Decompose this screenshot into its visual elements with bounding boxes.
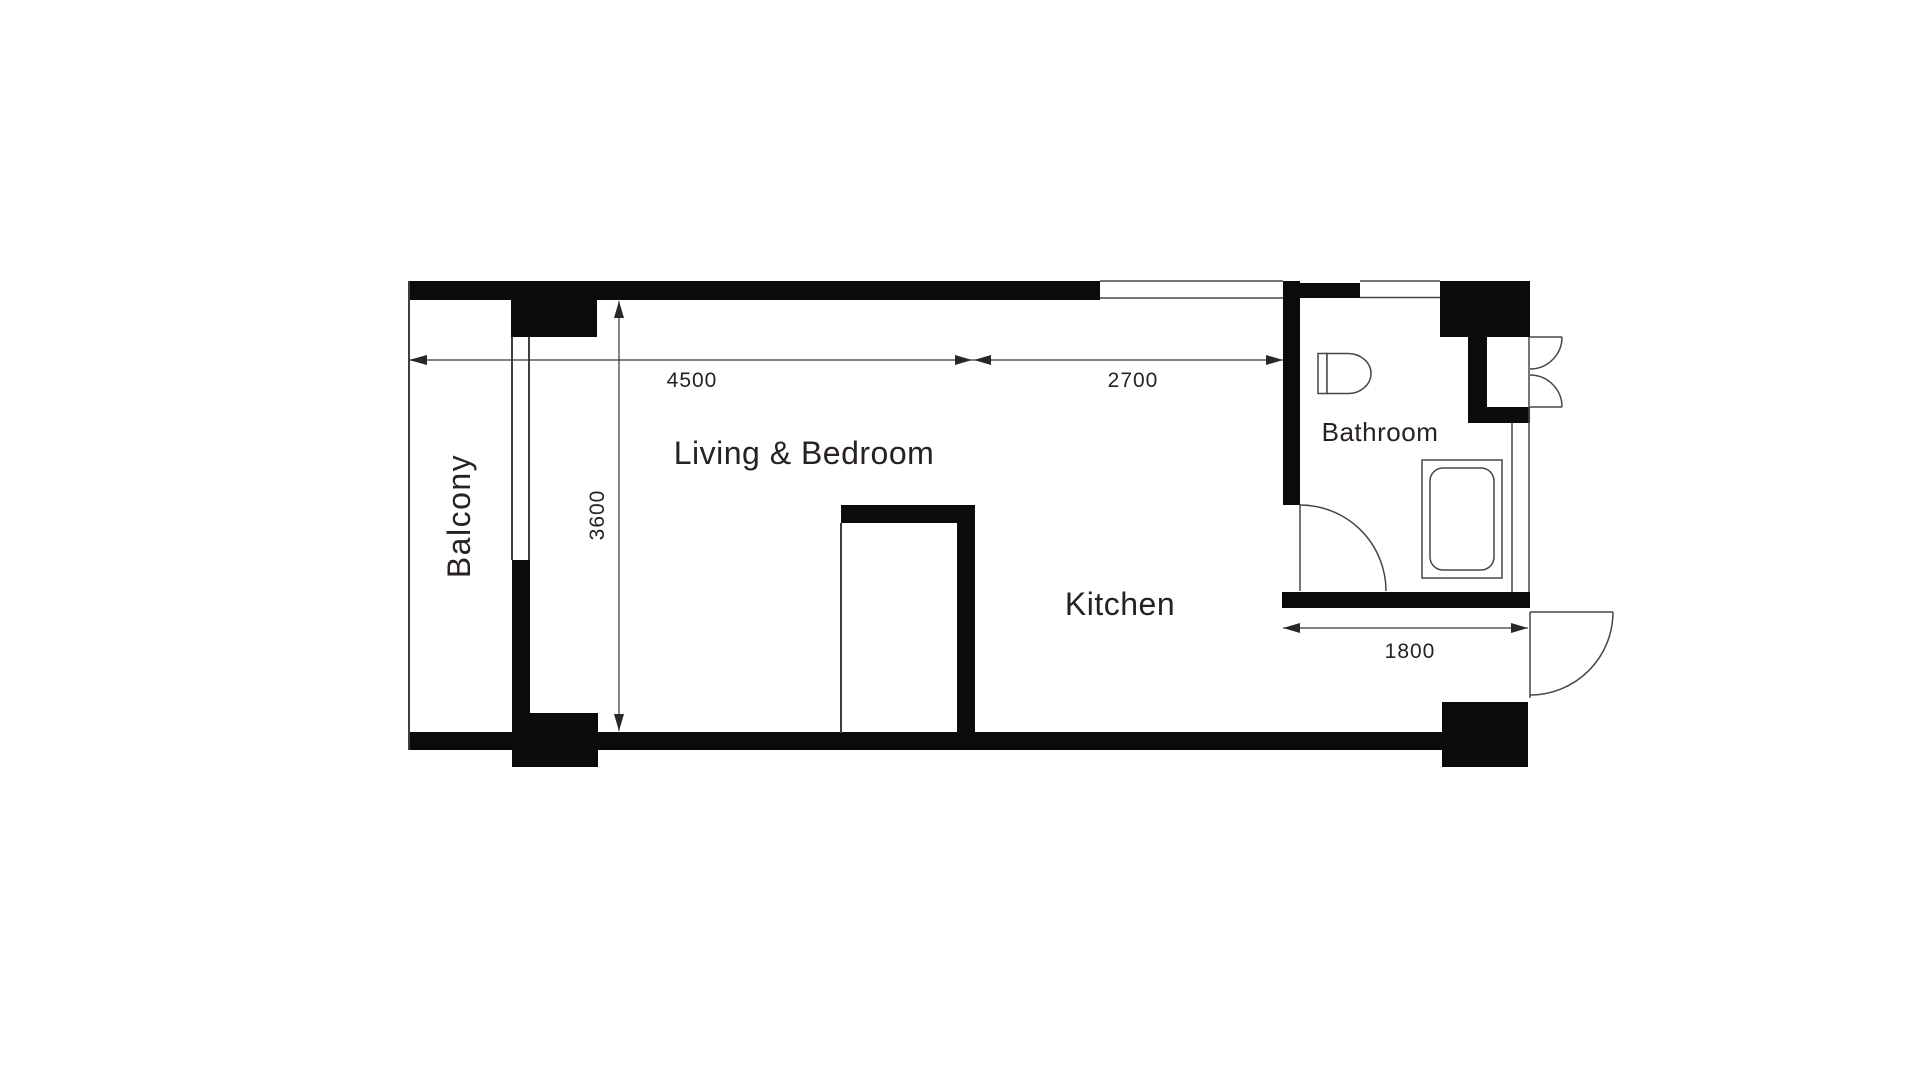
wall-balcony-right bbox=[512, 560, 530, 713]
room-label-kitchen: Kitchen bbox=[1065, 586, 1175, 622]
shaft-double-doors bbox=[1530, 337, 1562, 407]
toilet-tank bbox=[1318, 354, 1327, 394]
room-label-balcony: Balcony bbox=[441, 454, 477, 578]
floor-plan-drawing: 4500 2700 3600 1800 Balcony Living & Bed… bbox=[0, 0, 1920, 1080]
wall-bathroom-top bbox=[1300, 283, 1360, 298]
toilet-icon bbox=[1318, 354, 1371, 394]
wall-column-top-right bbox=[1440, 281, 1530, 337]
arrow-right-2700 bbox=[1266, 355, 1283, 365]
wall-kitchen-counter-right bbox=[957, 505, 975, 733]
entrance-door-swing bbox=[1530, 612, 1613, 695]
toilet-bowl bbox=[1327, 354, 1371, 394]
dimension-value-4500: 4500 bbox=[667, 369, 718, 392]
arrow-left-2700 bbox=[974, 355, 991, 365]
bathroom-door-swing bbox=[1300, 505, 1386, 591]
bathtub-icon bbox=[1422, 460, 1502, 578]
bathroom-door bbox=[1300, 505, 1386, 591]
room-label-bathroom: Bathroom bbox=[1322, 417, 1439, 447]
floor-plan-page: 4500 2700 3600 1800 Balcony Living & Bed… bbox=[0, 0, 1920, 1080]
arrow-right-4500 bbox=[955, 355, 972, 365]
arrow-top-3600 bbox=[614, 301, 624, 318]
wall-bathroom-left bbox=[1283, 281, 1300, 505]
arrow-left-4500 bbox=[409, 355, 427, 365]
wall-shaft-bottom bbox=[1468, 407, 1530, 423]
room-label-living-bedroom: Living & Bedroom bbox=[674, 435, 935, 471]
wall-bottom bbox=[409, 732, 1442, 750]
wall-bathroom-bottom bbox=[1282, 592, 1530, 608]
wall-column-entrance bbox=[1442, 702, 1528, 767]
arrow-right-1800 bbox=[1511, 623, 1528, 633]
entrance-door bbox=[1530, 612, 1613, 698]
dimension-value-1800: 1800 bbox=[1385, 640, 1436, 663]
shaft-door-lower-swing bbox=[1530, 375, 1562, 407]
dimension-value-2700: 2700 bbox=[1108, 369, 1159, 392]
bathtub-inner bbox=[1430, 468, 1494, 570]
wall-kitchen-counter-top bbox=[841, 505, 975, 523]
wall-column-balcony-top bbox=[511, 300, 597, 337]
wall-top bbox=[409, 281, 1100, 300]
arrow-left-1800 bbox=[1283, 623, 1300, 633]
shaft-door-upper-swing bbox=[1530, 337, 1562, 369]
dimension-value-3600: 3600 bbox=[586, 490, 609, 541]
walls bbox=[409, 281, 1530, 767]
arrow-bottom-3600 bbox=[614, 714, 624, 731]
